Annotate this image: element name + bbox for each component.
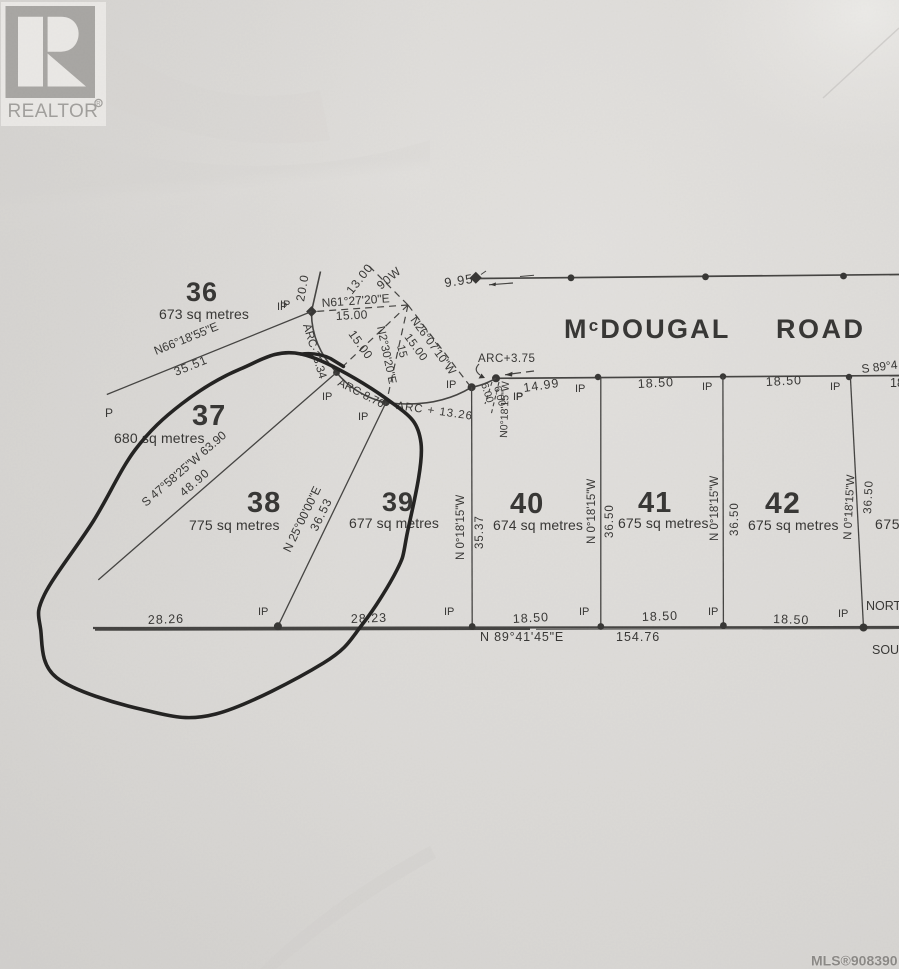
svg-text:MLS®908390: MLS®908390 xyxy=(811,953,898,969)
